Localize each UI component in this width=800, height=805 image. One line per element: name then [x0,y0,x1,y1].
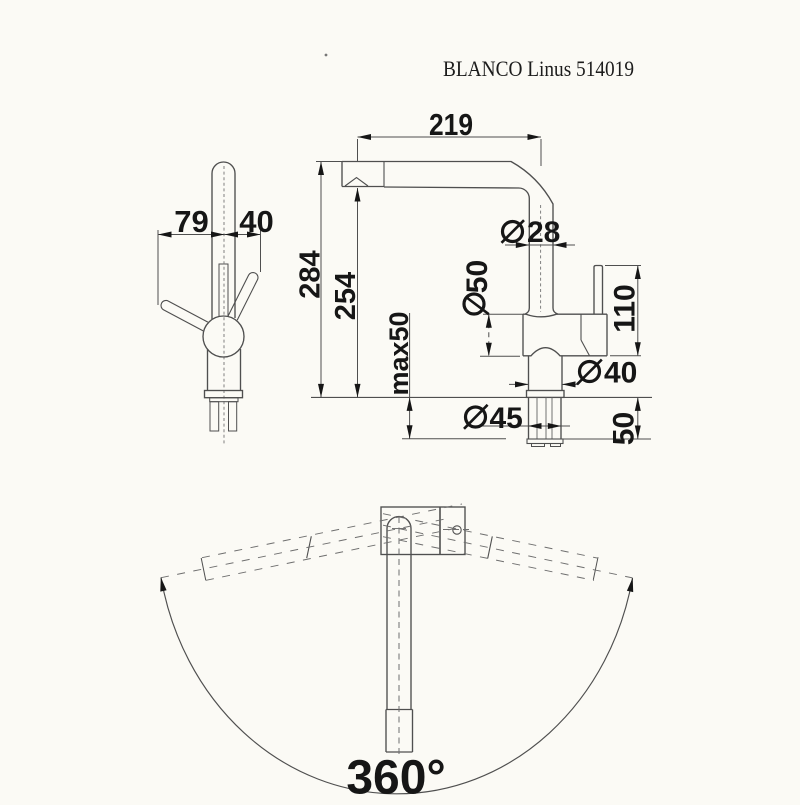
svg-text:40: 40 [239,204,273,239]
svg-text:max50: max50 [384,311,414,395]
svg-text:BLANCO Linus 514019: BLANCO Linus 514019 [443,56,634,81]
svg-text:50: 50 [461,260,494,293]
svg-text:28: 28 [527,216,560,249]
svg-text:40: 40 [604,357,637,390]
svg-text:45: 45 [490,402,523,435]
svg-text:284: 284 [295,250,327,298]
svg-text:110: 110 [609,284,642,332]
svg-text:50: 50 [608,412,641,445]
svg-text:360°: 360° [346,752,445,801]
svg-text:79: 79 [174,204,208,239]
svg-text:219: 219 [429,107,473,142]
svg-text:254: 254 [330,272,362,320]
